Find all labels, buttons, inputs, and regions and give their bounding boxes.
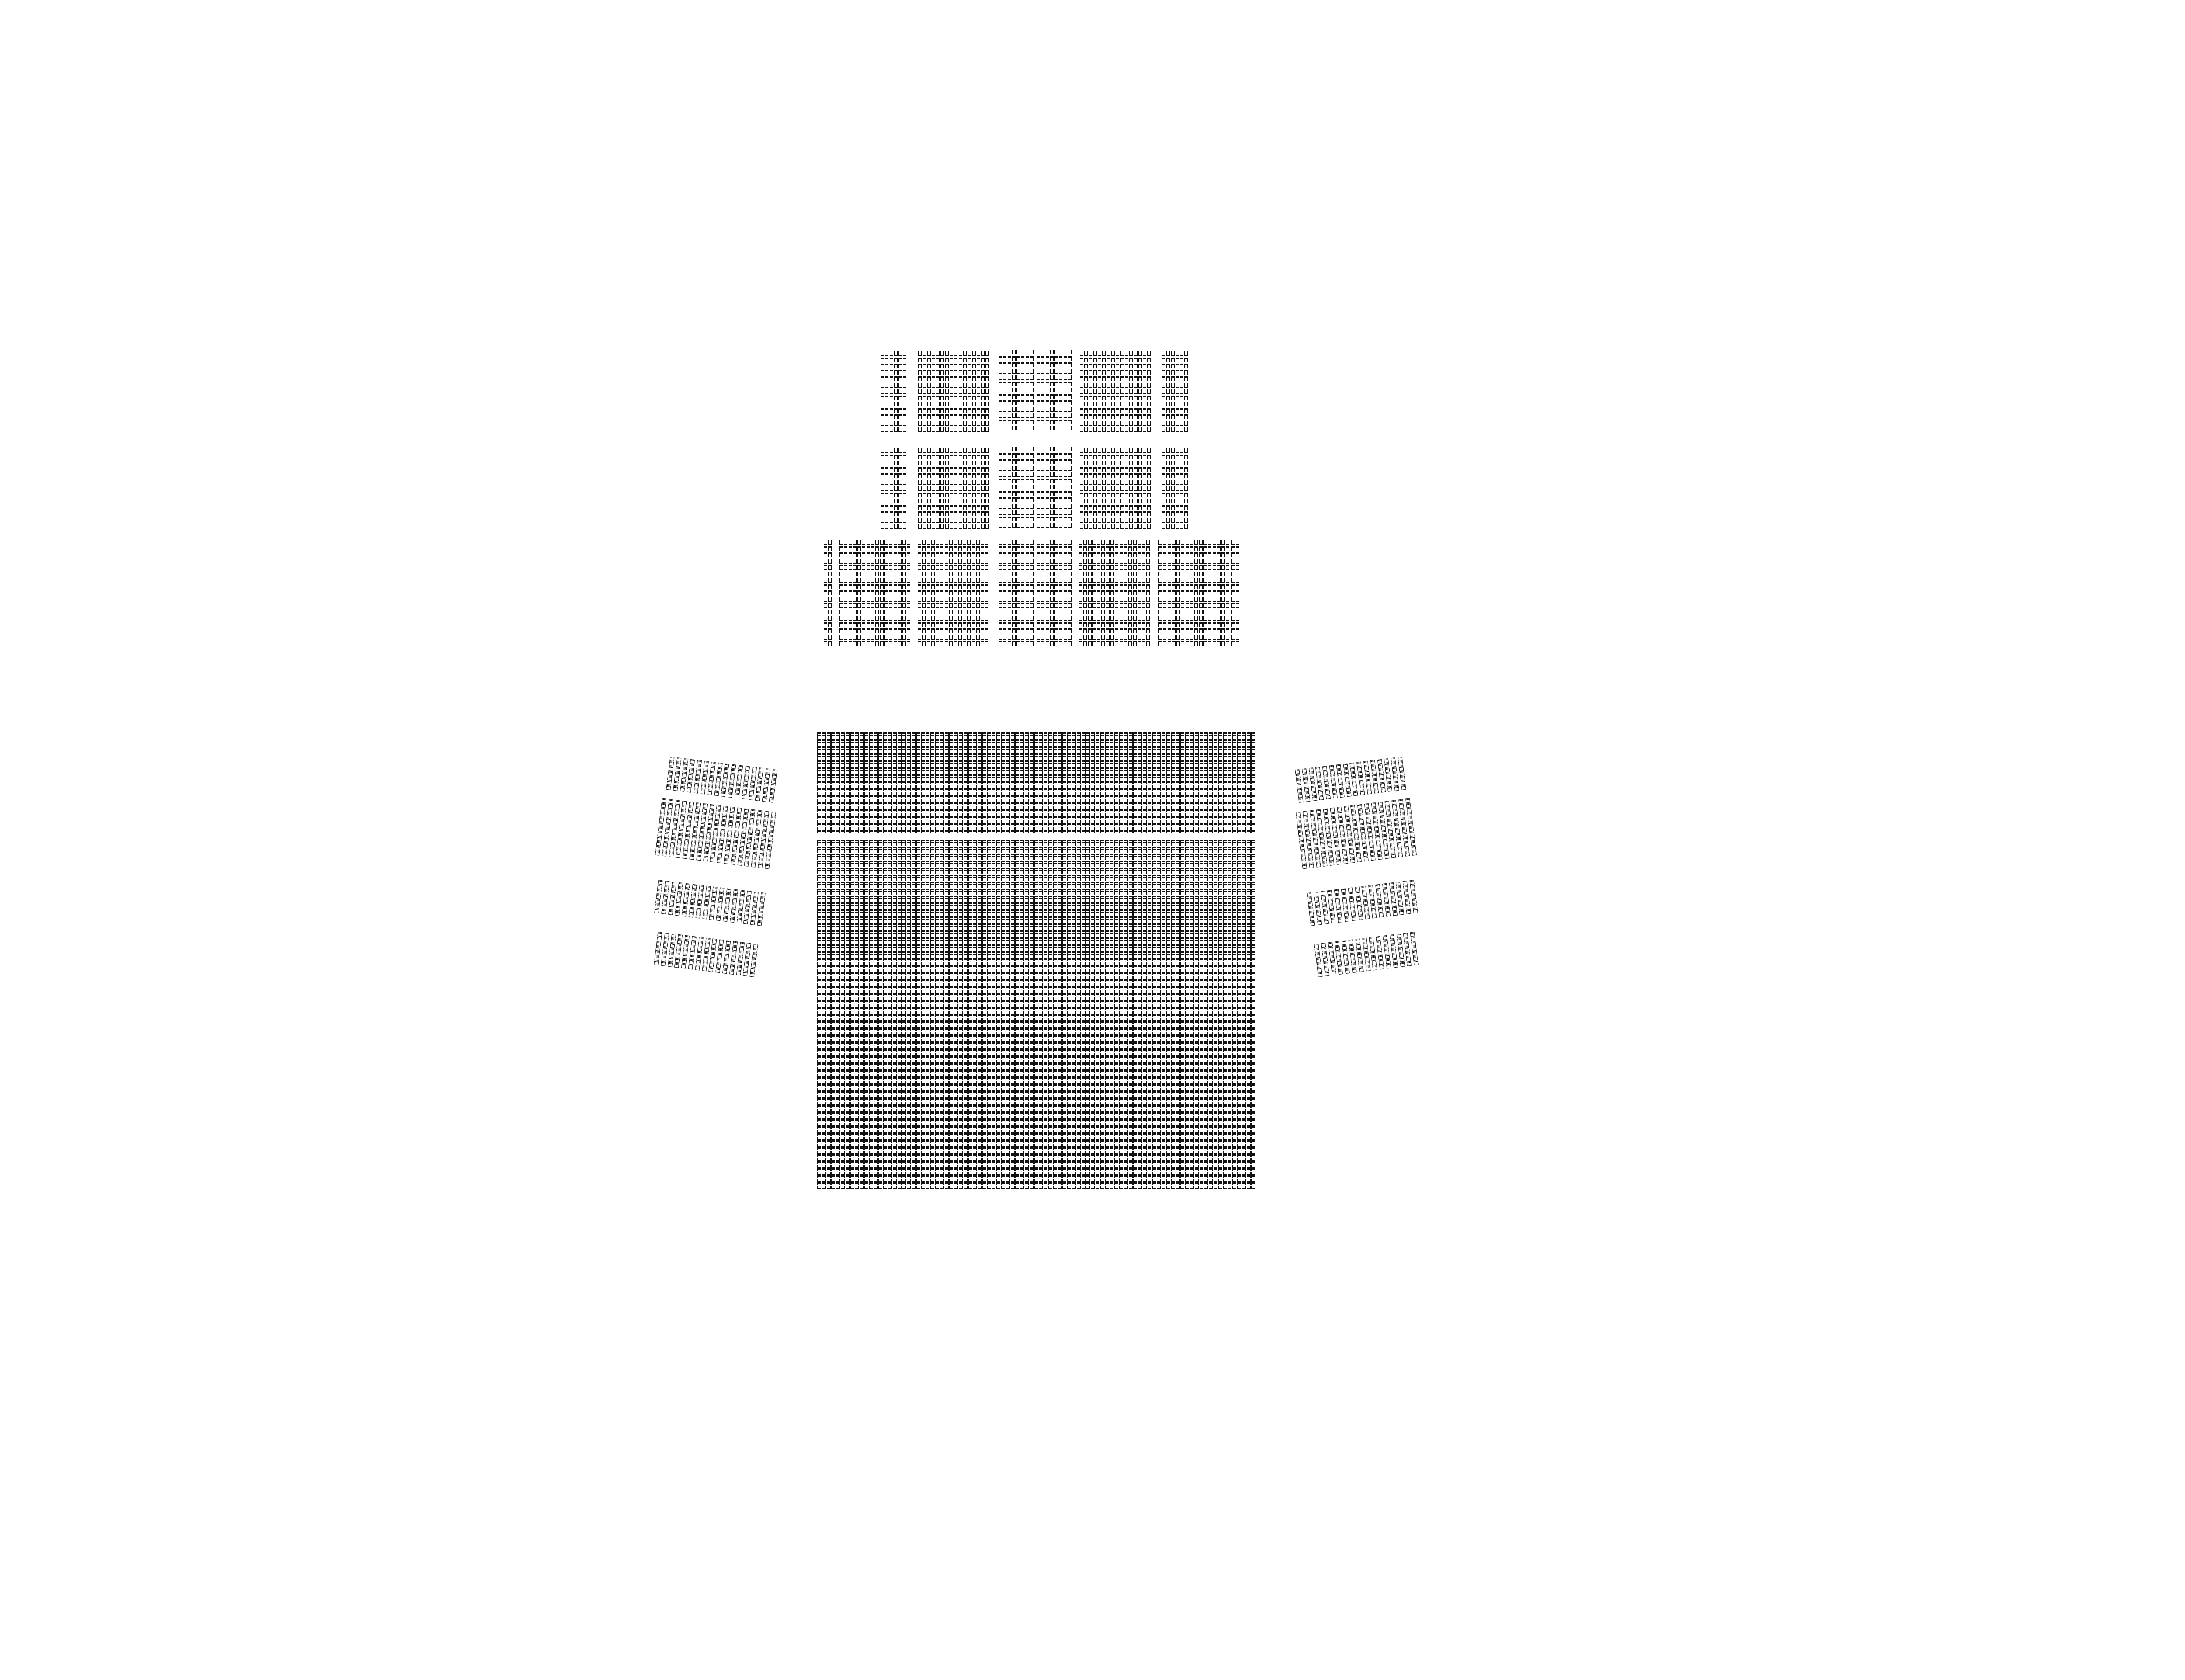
seat[interactable] (1072, 760, 1076, 764)
seat[interactable] (1129, 781, 1133, 784)
seat[interactable] (885, 414, 888, 419)
seat[interactable] (1162, 524, 1165, 529)
seat[interactable] (1228, 799, 1231, 802)
seat[interactable] (1214, 774, 1217, 778)
seat[interactable] (878, 799, 882, 802)
seat[interactable] (949, 546, 953, 551)
seat[interactable] (1162, 795, 1165, 798)
seat[interactable] (1011, 746, 1015, 750)
seat[interactable] (932, 421, 935, 426)
seat[interactable] (1148, 736, 1151, 739)
seat[interactable] (1093, 402, 1097, 406)
seat[interactable] (1115, 540, 1118, 545)
seat[interactable] (1026, 603, 1029, 608)
seat[interactable] (964, 767, 968, 771)
seat[interactable] (1124, 795, 1128, 798)
seat[interactable] (1021, 388, 1024, 392)
seat[interactable] (1058, 750, 1062, 753)
seat[interactable] (1195, 732, 1199, 736)
seat[interactable] (1124, 565, 1127, 570)
seat[interactable] (881, 499, 884, 503)
seat[interactable] (940, 402, 944, 406)
seat[interactable] (884, 641, 888, 646)
seat[interactable] (1231, 540, 1235, 545)
seat[interactable] (1025, 743, 1029, 746)
seat[interactable] (940, 499, 944, 503)
seat[interactable] (1021, 382, 1024, 386)
seat[interactable] (1068, 400, 1072, 405)
seat[interactable] (1180, 486, 1183, 491)
seat[interactable] (1184, 376, 1188, 381)
seat[interactable] (1041, 510, 1044, 515)
seat[interactable] (940, 493, 944, 497)
seat[interactable] (1184, 499, 1188, 503)
seat[interactable] (1012, 362, 1016, 367)
seat[interactable] (1116, 518, 1119, 523)
seat[interactable] (1030, 799, 1034, 802)
seat[interactable] (1158, 622, 1162, 627)
seat[interactable] (923, 486, 926, 491)
seat[interactable] (875, 628, 879, 633)
seat[interactable] (1100, 774, 1104, 778)
seat[interactable] (1237, 750, 1241, 753)
seat[interactable] (949, 635, 953, 640)
seat[interactable] (958, 641, 962, 646)
seat[interactable] (954, 467, 957, 472)
seat[interactable] (1190, 757, 1194, 760)
seat[interactable] (881, 396, 884, 400)
seat[interactable] (981, 499, 985, 503)
seat[interactable] (1228, 750, 1231, 753)
seat[interactable] (874, 774, 878, 778)
seat[interactable] (850, 732, 854, 736)
seat[interactable] (1077, 736, 1081, 739)
seat[interactable] (890, 511, 893, 516)
seat[interactable] (1129, 389, 1133, 394)
seat[interactable] (912, 774, 916, 778)
seat[interactable] (1129, 795, 1133, 798)
seat[interactable] (902, 635, 906, 640)
seat[interactable] (1138, 421, 1142, 426)
seat[interactable] (846, 802, 850, 805)
seat[interactable] (977, 518, 980, 523)
seat[interactable] (1184, 414, 1188, 419)
seat[interactable] (1084, 351, 1088, 356)
seat[interactable] (950, 467, 953, 472)
seat[interactable] (1064, 350, 1067, 354)
seat[interactable] (1213, 546, 1216, 551)
seat[interactable] (945, 799, 949, 802)
seat[interactable] (1218, 795, 1222, 798)
seat[interactable] (949, 792, 953, 795)
seat[interactable] (1114, 795, 1118, 798)
seat[interactable] (1142, 590, 1145, 595)
seat[interactable] (1138, 799, 1142, 802)
seat[interactable] (949, 590, 953, 595)
seat[interactable] (1213, 572, 1216, 576)
seat[interactable] (1147, 505, 1151, 510)
seat[interactable] (1218, 736, 1222, 739)
seat[interactable] (827, 764, 831, 767)
seat[interactable] (885, 467, 888, 472)
seat[interactable] (1221, 590, 1225, 595)
seat[interactable] (977, 351, 980, 356)
seat[interactable] (1152, 771, 1156, 774)
seat[interactable] (985, 597, 988, 602)
seat[interactable] (1046, 552, 1049, 557)
seat[interactable] (1110, 622, 1114, 627)
seat[interactable] (1034, 795, 1038, 798)
seat[interactable] (1133, 736, 1137, 739)
seat[interactable] (878, 771, 882, 774)
seat[interactable] (1053, 739, 1057, 743)
seat[interactable] (907, 590, 910, 595)
seat[interactable] (1176, 376, 1179, 381)
seat[interactable] (1058, 774, 1062, 778)
seat[interactable] (1096, 767, 1099, 771)
seat[interactable] (817, 750, 821, 753)
seat[interactable] (878, 778, 882, 781)
seat[interactable] (1176, 781, 1180, 784)
seat[interactable] (1041, 459, 1044, 464)
seat[interactable] (1082, 788, 1086, 791)
seat[interactable] (918, 455, 922, 459)
seat[interactable] (1148, 757, 1151, 760)
seat[interactable] (1125, 414, 1128, 419)
seat[interactable] (1166, 781, 1170, 784)
seat[interactable] (1062, 760, 1066, 764)
seat[interactable] (1048, 739, 1052, 743)
seat[interactable] (885, 518, 888, 523)
seat[interactable] (1186, 616, 1189, 621)
seat[interactable] (985, 493, 989, 497)
seat[interactable] (1120, 396, 1124, 400)
seat[interactable] (1030, 750, 1034, 753)
seat[interactable] (855, 795, 859, 798)
seat[interactable] (977, 486, 980, 491)
seat[interactable] (1062, 739, 1066, 743)
seat[interactable] (945, 572, 948, 576)
seat[interactable] (987, 806, 991, 809)
seat[interactable] (1213, 552, 1216, 557)
seat[interactable] (1102, 511, 1106, 516)
seat[interactable] (1054, 565, 1058, 570)
seat[interactable] (992, 746, 995, 750)
seat[interactable] (1046, 603, 1049, 608)
seat[interactable] (918, 448, 922, 453)
seat[interactable] (1044, 771, 1047, 774)
seat[interactable] (1218, 802, 1222, 805)
seat[interactable] (1072, 757, 1076, 760)
seat[interactable] (1003, 517, 1006, 521)
seat[interactable] (1176, 370, 1179, 375)
seat[interactable] (1096, 732, 1099, 736)
seat[interactable] (1012, 453, 1016, 458)
seat[interactable] (1236, 540, 1239, 545)
seat[interactable] (1041, 590, 1044, 595)
seat[interactable] (1231, 597, 1235, 602)
seat[interactable] (1115, 552, 1118, 557)
seat[interactable] (907, 771, 911, 774)
seat[interactable] (1072, 785, 1076, 788)
seat[interactable] (1162, 389, 1165, 394)
seat[interactable] (864, 764, 868, 767)
seat[interactable] (1217, 565, 1221, 570)
seat[interactable] (880, 546, 884, 551)
seat[interactable] (977, 493, 980, 497)
seat[interactable] (850, 736, 854, 739)
seat[interactable] (1046, 578, 1049, 583)
seat[interactable] (1110, 788, 1113, 791)
seat[interactable] (1089, 370, 1092, 375)
seat[interactable] (1064, 497, 1067, 502)
seat[interactable] (940, 788, 944, 791)
seat[interactable] (1180, 427, 1183, 432)
seat[interactable] (1157, 792, 1161, 795)
seat[interactable] (1041, 622, 1044, 627)
seat[interactable] (1062, 778, 1066, 781)
seat[interactable] (828, 622, 832, 627)
seat[interactable] (1102, 505, 1106, 510)
seat[interactable] (940, 546, 943, 551)
seat[interactable] (1203, 552, 1207, 557)
seat[interactable] (950, 376, 953, 381)
seat[interactable] (1166, 358, 1170, 362)
seat[interactable] (841, 774, 845, 778)
seat[interactable] (874, 802, 878, 805)
seat[interactable] (1208, 540, 1211, 545)
seat[interactable] (1228, 792, 1231, 795)
seat[interactable] (1214, 764, 1217, 767)
seat[interactable] (875, 641, 879, 646)
seat[interactable] (985, 540, 988, 545)
seat[interactable] (1158, 603, 1162, 608)
seat[interactable] (1077, 795, 1081, 798)
seat[interactable] (1251, 736, 1255, 739)
seat[interactable] (940, 603, 943, 608)
seat[interactable] (921, 806, 925, 809)
seat[interactable] (1133, 597, 1137, 602)
seat[interactable] (849, 603, 852, 608)
seat[interactable] (1180, 736, 1184, 739)
seat[interactable] (1142, 616, 1145, 621)
seat[interactable] (954, 739, 958, 743)
seat[interactable] (1221, 565, 1225, 570)
seat[interactable] (880, 597, 884, 602)
seat[interactable] (1068, 426, 1072, 430)
seat[interactable] (1053, 795, 1057, 798)
seat[interactable] (1054, 628, 1058, 633)
seat[interactable] (1115, 597, 1118, 602)
seat[interactable] (959, 493, 962, 497)
seat[interactable] (1034, 739, 1038, 743)
seat[interactable] (867, 597, 870, 602)
seat[interactable] (898, 376, 902, 381)
seat[interactable] (1026, 420, 1029, 424)
seat[interactable] (1180, 750, 1184, 753)
seat[interactable] (1237, 753, 1241, 757)
seat[interactable] (1030, 565, 1034, 570)
seat[interactable] (1008, 426, 1011, 430)
seat[interactable] (1251, 750, 1255, 753)
seat[interactable] (1166, 421, 1170, 426)
seat[interactable] (999, 597, 1002, 602)
seat[interactable] (1203, 584, 1207, 589)
seat[interactable] (828, 590, 832, 595)
seat[interactable] (1133, 792, 1137, 795)
seat[interactable] (912, 802, 916, 805)
seat[interactable] (1114, 802, 1118, 805)
seat[interactable] (1180, 408, 1183, 413)
seat[interactable] (890, 427, 893, 432)
seat[interactable] (1030, 746, 1034, 750)
seat[interactable] (1107, 402, 1110, 406)
seat[interactable] (999, 407, 1002, 412)
seat[interactable] (1128, 641, 1132, 646)
seat[interactable] (857, 552, 861, 557)
seat[interactable] (912, 788, 916, 791)
seat[interactable] (1088, 552, 1092, 557)
seat[interactable] (1120, 448, 1124, 453)
seat[interactable] (1228, 760, 1231, 764)
seat[interactable] (981, 448, 985, 453)
seat[interactable] (1116, 455, 1119, 459)
seat[interactable] (932, 383, 935, 388)
seat[interactable] (1062, 753, 1066, 757)
seat[interactable] (855, 757, 859, 760)
seat[interactable] (1128, 590, 1132, 595)
seat[interactable] (1129, 753, 1133, 757)
seat[interactable] (860, 760, 864, 764)
seat[interactable] (836, 743, 840, 746)
seat[interactable] (1171, 364, 1175, 368)
seat[interactable] (1067, 732, 1071, 736)
seat[interactable] (1037, 517, 1040, 521)
seat[interactable] (1025, 785, 1029, 788)
seat[interactable] (875, 572, 879, 576)
seat[interactable] (926, 767, 929, 771)
seat[interactable] (903, 389, 906, 394)
seat[interactable] (927, 421, 931, 426)
seat[interactable] (940, 590, 943, 595)
seat[interactable] (1059, 510, 1062, 515)
seat[interactable] (999, 578, 1002, 583)
seat[interactable] (923, 524, 926, 529)
seat[interactable] (1064, 459, 1067, 464)
seat[interactable] (927, 358, 931, 362)
seat[interactable] (831, 774, 835, 778)
seat[interactable] (878, 802, 882, 805)
seat[interactable] (817, 760, 821, 764)
seat[interactable] (1242, 774, 1246, 778)
seat[interactable] (999, 497, 1002, 502)
seat[interactable] (949, 739, 953, 743)
seat[interactable] (977, 421, 980, 426)
seat[interactable] (862, 578, 865, 583)
seat[interactable] (844, 578, 847, 583)
seat[interactable] (981, 590, 984, 595)
seat[interactable] (918, 467, 922, 472)
seat[interactable] (963, 518, 967, 523)
seat[interactable] (1012, 459, 1016, 464)
seat[interactable] (1105, 799, 1109, 802)
seat[interactable] (1048, 785, 1052, 788)
seat[interactable] (1163, 597, 1166, 602)
seat[interactable] (1176, 351, 1179, 356)
seat[interactable] (1110, 785, 1113, 788)
seat[interactable] (1086, 743, 1090, 746)
seat[interactable] (1217, 540, 1221, 545)
seat[interactable] (1143, 771, 1147, 774)
seat[interactable] (1077, 746, 1081, 750)
seat[interactable] (1133, 739, 1137, 743)
seat[interactable] (932, 389, 935, 394)
seat[interactable] (1058, 760, 1062, 764)
seat[interactable] (1048, 799, 1052, 802)
seat[interactable] (850, 739, 854, 743)
seat[interactable] (841, 802, 845, 805)
seat[interactable] (940, 778, 944, 781)
seat[interactable] (927, 572, 930, 576)
seat[interactable] (890, 493, 893, 497)
seat[interactable] (972, 414, 976, 419)
seat[interactable] (1037, 453, 1040, 458)
seat[interactable] (940, 480, 944, 485)
seat[interactable] (1138, 351, 1142, 356)
seat[interactable] (846, 757, 850, 760)
seat[interactable] (931, 559, 935, 564)
seat[interactable] (959, 524, 962, 529)
seat[interactable] (1091, 778, 1095, 781)
seat[interactable] (836, 750, 840, 753)
seat[interactable] (1138, 792, 1142, 795)
seat[interactable] (1050, 472, 1054, 477)
seat[interactable] (1176, 540, 1180, 545)
seat[interactable] (1172, 610, 1176, 614)
seat[interactable] (878, 760, 882, 764)
seat[interactable] (1172, 628, 1176, 633)
seat[interactable] (1068, 447, 1072, 451)
seat[interactable] (902, 778, 906, 781)
seat[interactable] (889, 572, 892, 576)
seat[interactable] (1119, 795, 1123, 798)
seat[interactable] (1217, 641, 1221, 646)
seat[interactable] (1068, 472, 1072, 477)
seat[interactable] (936, 473, 940, 478)
seat[interactable] (1041, 407, 1044, 412)
seat[interactable] (898, 746, 902, 750)
seat[interactable] (1223, 743, 1227, 746)
seat[interactable] (1105, 788, 1109, 791)
seat[interactable] (1059, 356, 1062, 361)
seat[interactable] (959, 396, 962, 400)
seat[interactable] (1001, 792, 1005, 795)
seat[interactable] (1037, 628, 1040, 633)
seat[interactable] (1110, 792, 1113, 795)
seat[interactable] (1093, 351, 1097, 356)
seat[interactable] (1116, 414, 1119, 419)
seat[interactable] (1046, 466, 1049, 471)
seat[interactable] (1037, 375, 1040, 380)
seat[interactable] (1062, 795, 1066, 798)
seat[interactable] (1176, 764, 1180, 767)
seat[interactable] (954, 753, 958, 757)
seat[interactable] (978, 743, 982, 746)
seat[interactable] (936, 396, 940, 400)
seat[interactable] (1129, 785, 1133, 788)
seat[interactable] (967, 590, 971, 595)
seat[interactable] (1016, 523, 1020, 528)
